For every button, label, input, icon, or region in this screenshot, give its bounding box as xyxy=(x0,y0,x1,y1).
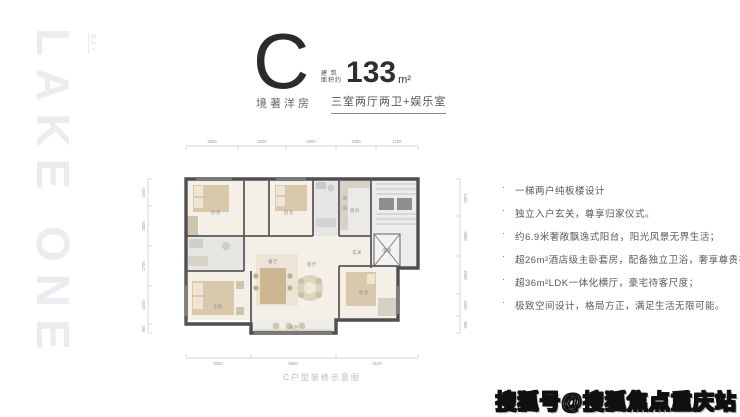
room-label: 餐厅 xyxy=(268,258,278,265)
dim-top: 3200 xyxy=(257,139,267,144)
unit-letter: C xyxy=(253,22,309,100)
brand-watermark: LAKE ONE xyxy=(26,28,80,362)
area-value: 133 xyxy=(346,58,396,88)
dim-right: 3600 xyxy=(463,231,468,241)
dim-right: 2500 xyxy=(463,270,468,280)
feature-text: 约6.9米奢敞飘逸式阳台，阳光风景无界生活； xyxy=(515,232,720,243)
room-label: 卧室 xyxy=(211,209,221,216)
bullet-icon: · xyxy=(502,228,506,239)
sohu-watermark: 搜狐号@搜狐焦点重庆站 xyxy=(496,386,737,416)
dim-left: 3300 xyxy=(141,221,146,231)
feature-text: 一梯两户纯板楼设计 xyxy=(515,186,605,197)
room-label: 阳台 xyxy=(289,324,299,331)
dim-right: 1400 xyxy=(463,193,468,203)
room-label: 厨房 xyxy=(350,207,360,214)
feature-item: ·超36m²LDK一体化横厅，豪宅待客尺度； xyxy=(502,275,740,289)
dim-left: 1500 xyxy=(141,188,146,198)
room-label: 卧室 xyxy=(359,289,369,296)
plan-caption: C户型装修示意图 xyxy=(252,372,392,383)
floorplan-drawing: 3500 3200 3300 1500 1100 1500 3300 2700 … xyxy=(136,136,472,376)
bullet-icon: · xyxy=(502,251,506,262)
feature-text: 独立入户玄关，尊享归家仪式。 xyxy=(515,209,655,220)
feature-list: ·一梯两户纯板楼设计 ·独立入户玄关，尊享归家仪式。 ·约6.9米奢敞飘逸式阳台… xyxy=(502,183,740,321)
room-label: 客厅 xyxy=(307,261,317,268)
area-group: 建 筑 面积约 133 m² xyxy=(321,58,411,88)
dim-top: 3300 xyxy=(306,139,316,144)
feature-item: ·独立入户玄关，尊享归家仪式。 xyxy=(502,206,740,220)
area-label-line1: 建 筑 xyxy=(321,71,342,78)
dim-left: 4200 xyxy=(141,300,146,310)
feature-item: ·极致空间设计，格局方正，满足生活无限可能。 xyxy=(502,298,740,312)
dim-right: 1000 xyxy=(463,300,468,310)
bullet-icon: · xyxy=(502,205,506,216)
series-name: 境著洋房 xyxy=(256,95,312,111)
dim-left: 2700 xyxy=(141,261,146,271)
page: LAKE ONE BAY C 建 筑 面积约 133 m² 境著洋房 三室两厅两… xyxy=(0,0,740,417)
feature-item: ·约6.9米奢敞飘逸式阳台，阳光风景无界生活； xyxy=(502,229,740,243)
feature-item: ·一梯两户纯板楼设计 xyxy=(502,183,740,197)
layout-text: 三室两厅两卫+娱乐室 xyxy=(331,93,446,114)
dim-left: 900 xyxy=(141,325,146,333)
dim-bottom: 2100 xyxy=(372,361,382,366)
dim-bottom: 9800 xyxy=(288,361,298,366)
dim-right: 800 xyxy=(463,322,468,330)
feature-text: 超26m²酒店级主卧套房，配备独立卫浴，奢享尊贵礼遇 xyxy=(515,255,740,266)
room-label: 主卧 xyxy=(213,303,223,310)
dim-top: 1100 xyxy=(392,139,402,144)
dim-top: 1500 xyxy=(351,139,361,144)
bullet-icon: · xyxy=(502,297,506,308)
area-unit: m² xyxy=(398,74,411,86)
room-label: 玄关 xyxy=(352,249,362,256)
feature-text: 超36m²LDK一体化横厅，豪宅待客尺度； xyxy=(515,278,699,289)
area-label-line2: 面积约 xyxy=(321,78,342,85)
brand-sub-watermark: BAY xyxy=(88,34,96,54)
bullet-icon: · xyxy=(502,274,506,285)
bullet-icon: · xyxy=(502,182,506,193)
room-label: 卧室 xyxy=(284,209,294,216)
feature-item: ·超26m²酒店级主卧套房，配备独立卫浴，奢享尊贵礼遇 xyxy=(502,252,740,266)
area-label: 建 筑 面积约 xyxy=(321,71,342,85)
room-label: 电梯 xyxy=(382,247,392,254)
dim-top: 3500 xyxy=(207,139,217,144)
feature-text: 极致空间设计，格局方正，满足生活无限可能。 xyxy=(515,301,725,312)
dim-bottom: 3300 xyxy=(213,361,223,366)
